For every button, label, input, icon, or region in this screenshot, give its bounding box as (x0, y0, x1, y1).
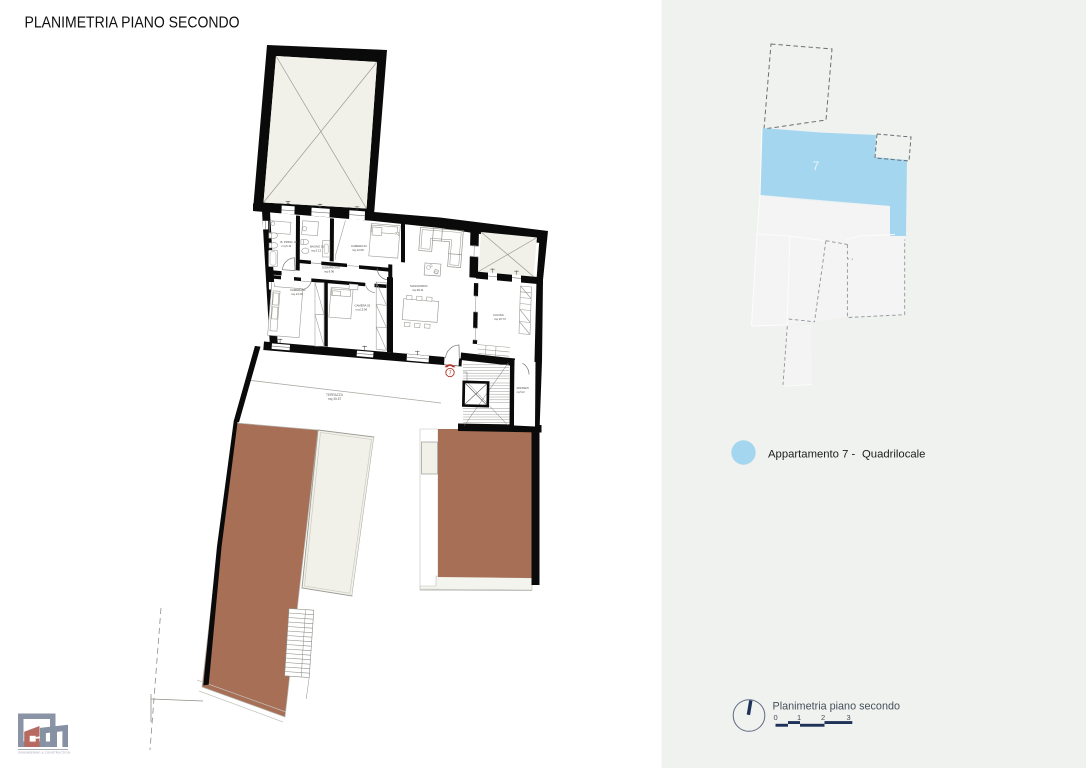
svg-text:mq 5.10: mq 5.10 (517, 390, 525, 394)
svg-text:mq 12.08: mq 12.08 (352, 248, 364, 252)
svg-text:Planimetria piano secondo: Planimetria piano secondo (773, 701, 901, 713)
svg-text:mq 14.18: mq 14.18 (291, 292, 303, 296)
svg-text:mq 6.11: mq 6.11 (282, 244, 292, 248)
svg-text:2: 2 (821, 713, 825, 722)
svg-text:Quadrilocale: Quadrilocale (862, 449, 925, 461)
svg-text:7: 7 (813, 159, 820, 173)
svg-text:mq 8.96: mq 8.96 (324, 269, 335, 273)
svg-text:0: 0 (774, 713, 778, 722)
svg-text:mq 5.13: mq 5.13 (311, 248, 322, 252)
svg-text:ENGINEERING & CONSTRUCTION: ENGINEERING & CONSTRUCTION (19, 750, 71, 754)
svg-text:APPARTAMENTO: APPARTAMENTO (517, 386, 530, 390)
svg-text:3: 3 (847, 713, 851, 722)
svg-text:mq 16.73: mq 16.73 (494, 317, 506, 321)
svg-text:mq 38.11: mq 38.11 (412, 288, 424, 292)
svg-text:Appartamento 7 -: Appartamento 7 - (768, 449, 856, 461)
svg-text:mq 45.67: mq 45.67 (328, 397, 342, 401)
svg-text:7: 7 (449, 371, 452, 377)
svg-text:PLANIMETRIA PIANO SECONDO: PLANIMETRIA PIANO SECONDO (25, 14, 240, 31)
svg-text:mq 13.96: mq 13.96 (356, 307, 368, 311)
svg-text:1: 1 (797, 713, 801, 722)
